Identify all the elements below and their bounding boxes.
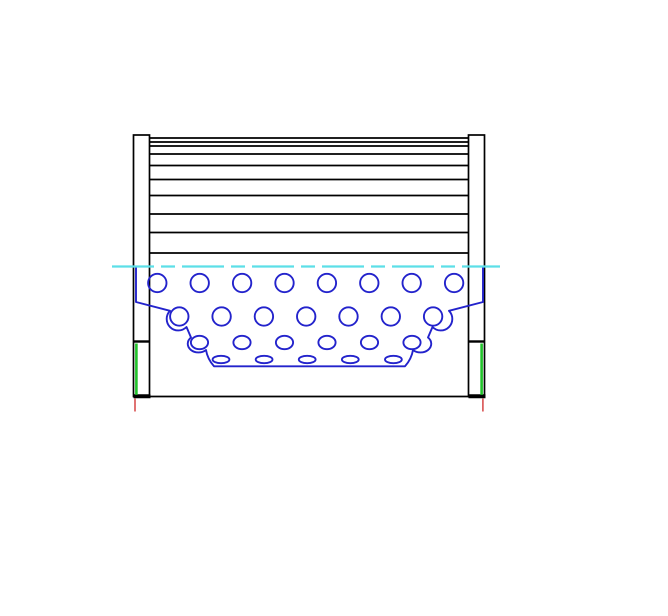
- drawing-page: [0, 0, 668, 616]
- filter-element-drawing: [0, 0, 668, 616]
- drawing-background: [0, 0, 668, 616]
